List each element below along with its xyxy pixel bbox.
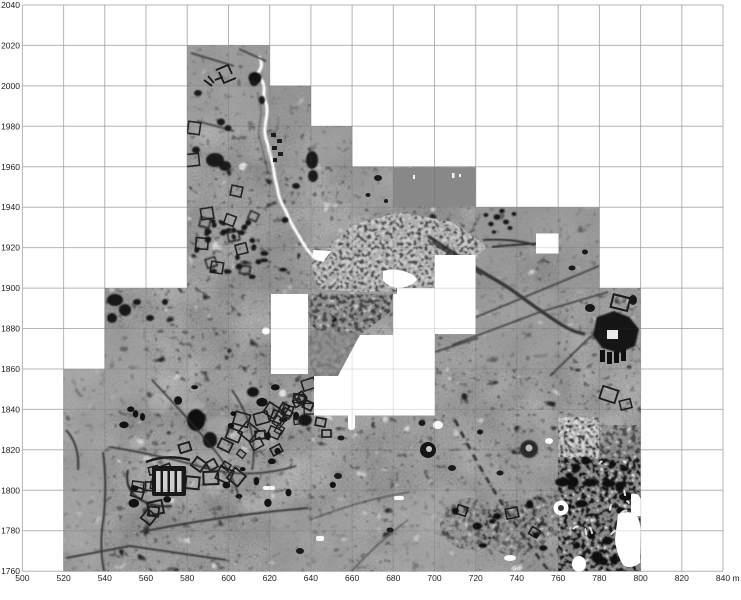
svg-text:1820: 1820 (1, 445, 20, 455)
svg-text:580: 580 (180, 573, 194, 583)
svg-text:600: 600 (221, 573, 235, 583)
svg-text:800: 800 (634, 573, 648, 583)
svg-text:760: 760 (551, 573, 565, 583)
svg-text:2020: 2020 (1, 40, 20, 50)
svg-text:1800: 1800 (1, 485, 20, 495)
svg-text:640: 640 (304, 573, 318, 583)
svg-text:660: 660 (345, 573, 359, 583)
svg-text:2040: 2040 (1, 0, 20, 10)
svg-text:2000: 2000 (1, 81, 20, 91)
svg-text:1900: 1900 (1, 283, 20, 293)
svg-text:720: 720 (469, 573, 483, 583)
svg-text:560: 560 (139, 573, 153, 583)
svg-text:1780: 1780 (1, 526, 20, 536)
svg-text:780: 780 (592, 573, 606, 583)
svg-text:1860: 1860 (1, 364, 20, 374)
svg-text:1940: 1940 (1, 202, 20, 212)
svg-text:520: 520 (57, 573, 71, 583)
svg-text:700: 700 (427, 573, 441, 583)
svg-text:740: 740 (510, 573, 524, 583)
svg-text:1840: 1840 (1, 404, 20, 414)
svg-text:m: m (733, 573, 740, 583)
svg-text:820: 820 (675, 573, 689, 583)
svg-text:620: 620 (263, 573, 277, 583)
svg-text:1880: 1880 (1, 324, 20, 334)
svg-text:1960: 1960 (1, 162, 20, 172)
svg-text:680: 680 (386, 573, 400, 583)
svg-text:1920: 1920 (1, 243, 20, 253)
svg-text:840: 840 (716, 573, 730, 583)
svg-text:500: 500 (15, 573, 29, 583)
svg-text:540: 540 (98, 573, 112, 583)
svg-text:1980: 1980 (1, 121, 20, 131)
